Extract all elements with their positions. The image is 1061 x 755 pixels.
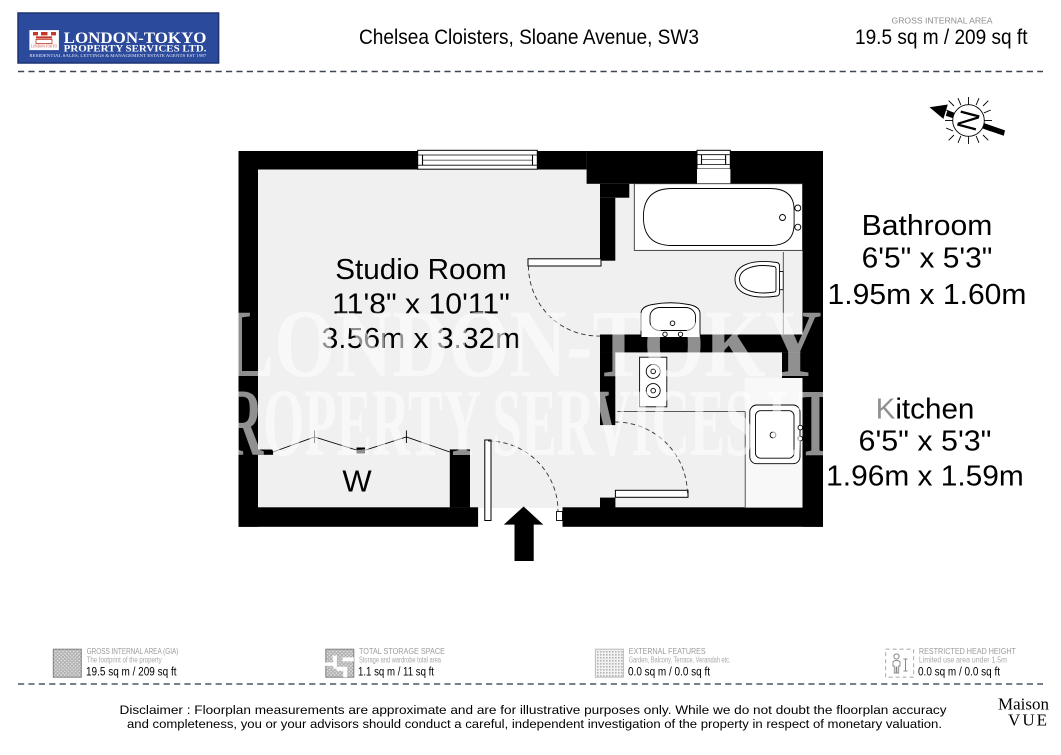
svg-text:and completeness, you or your: and completeness, you or your advisors s… bbox=[127, 717, 942, 731]
svg-text:19.5 sq m / 209 sq ft: 19.5 sq m / 209 sq ft bbox=[86, 666, 177, 678]
svg-text:1.1 sq m / 11 sq ft: 1.1 sq m / 11 sq ft bbox=[358, 666, 435, 678]
svg-text:Bathroom: Bathroom bbox=[862, 210, 993, 242]
svg-text:0.0 sq m / 0.0 sq ft: 0.0 sq m / 0.0 sq ft bbox=[628, 666, 711, 678]
svg-text:Limited use area under 1.5m: Limited use area under 1.5m bbox=[919, 656, 1007, 665]
svg-text:0.0 sq m / 0.0 sq ft: 0.0 sq m / 0.0 sq ft bbox=[918, 666, 1001, 678]
svg-text:PROPERTY SERVICES LT: PROPERTY SERVICES LT bbox=[193, 369, 833, 476]
svg-text:19.5 sq m / 209 sq ft: 19.5 sq m / 209 sq ft bbox=[855, 25, 1028, 49]
svg-text:6'5" x 5'3": 6'5" x 5'3" bbox=[862, 243, 993, 275]
svg-text:Chelsea Cloisters, Sloane Aven: Chelsea Cloisters, Sloane Avenue, SW3 bbox=[359, 25, 699, 49]
svg-text:6'5" x 5'3": 6'5" x 5'3" bbox=[859, 425, 992, 457]
svg-text:VUE: VUE bbox=[1008, 711, 1049, 730]
svg-text:Studio Room: Studio Room bbox=[335, 254, 507, 286]
svg-text:LONDON-TOKYO: LONDON-TOKYO bbox=[31, 44, 57, 48]
svg-text:Disclaimer : Floorplan measure: Disclaimer : Floorplan measurements are … bbox=[120, 703, 948, 717]
svg-text:The footprint of the property: The footprint of the property bbox=[87, 656, 162, 665]
svg-text:Garden, Balcony, Terrace, Vera: Garden, Balcony, Terrace, Verandah etc. bbox=[629, 656, 731, 665]
svg-text:1.96m x 1.59m: 1.96m x 1.59m bbox=[826, 461, 1024, 493]
svg-text:1.95m x 1.60m: 1.95m x 1.60m bbox=[828, 279, 1027, 311]
svg-text:Storage and wardrobe total are: Storage and wardrobe total area bbox=[359, 656, 441, 665]
